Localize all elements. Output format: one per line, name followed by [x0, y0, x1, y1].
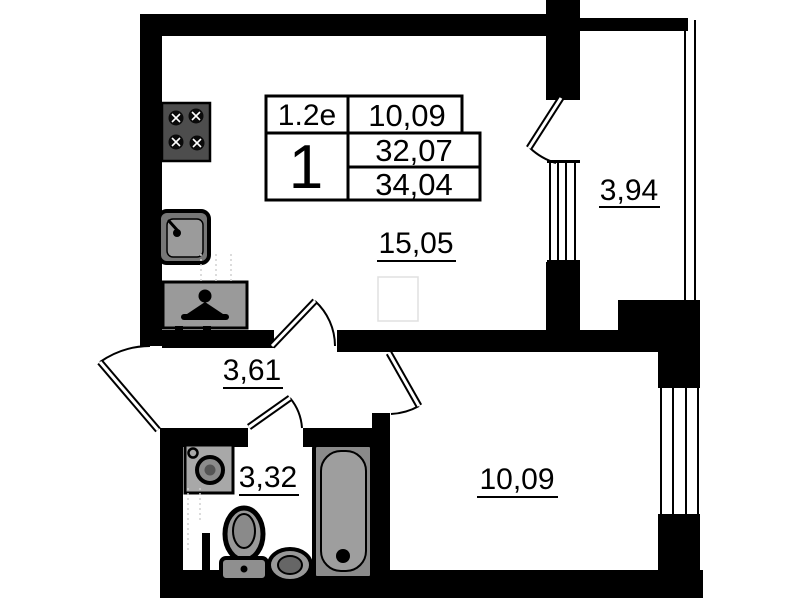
room-label-bathroom: 3,32 [239, 461, 297, 494]
stamp-area-no-balcony: 32,07 [375, 133, 453, 168]
balcony-door [529, 98, 561, 163]
wall-living-bedroom [337, 330, 660, 352]
stamp-living-area: 10,09 [368, 98, 446, 133]
pedestal-sink-icon [269, 549, 311, 581]
room-label-balcony: 3,94 [600, 174, 658, 207]
bedroom-window [658, 385, 700, 517]
living-room-door-arc [315, 301, 335, 346]
bathroom-door-arc [290, 398, 302, 428]
entrance-door [100, 346, 158, 430]
balcony-glazing [685, 20, 695, 300]
wardrobe-icon [163, 282, 247, 332]
wall-top [140, 14, 564, 36]
stamp-room-count: 1 [289, 133, 323, 202]
bedroom-door [389, 353, 419, 414]
stamp-plan-type: 1.2e [278, 99, 336, 132]
wall-bedroom-pier-top [658, 330, 700, 387]
living-room-door [272, 301, 335, 346]
wall-balcony-top [580, 18, 688, 31]
floor-plan-page: 15,05 3,94 3,61 3,32 10,09 1.2e 10,09 1 … [0, 0, 799, 600]
balcony-door-arc [530, 148, 556, 163]
bathroom-door [249, 398, 302, 428]
toilet-icon [221, 508, 267, 580]
living-balcony-window [547, 160, 580, 263]
wall-pier-balcony-top [546, 0, 580, 100]
bedroom-door-arc [391, 406, 419, 414]
wall-bath-partition [202, 533, 210, 573]
wall-bedroom-pier-bottom [658, 516, 700, 574]
stamp-total-area: 34,04 [375, 167, 453, 202]
unit-stamp-table: 1.2e 10,09 1 32,07 34,04 [266, 96, 480, 202]
entrance-door-arc [100, 346, 150, 362]
room-label-hallway: 3,61 [223, 354, 281, 387]
wall-left [140, 14, 162, 346]
wall-balcony-bottom [618, 300, 700, 332]
washing-machine-icon [185, 445, 233, 493]
bathtub-icon [314, 445, 372, 578]
room-label-living: 15,05 [378, 227, 453, 260]
wall-hall-living-divider [162, 330, 274, 348]
stove-icon [162, 103, 210, 161]
room-label-bedroom: 10,09 [479, 463, 554, 496]
wall-pier-window-bottom [546, 262, 580, 332]
wall-hall-bedroom-lower [372, 413, 390, 577]
faint-ghost-outline [378, 277, 418, 321]
floor-plan-svg: 15,05 3,94 3,61 3,32 10,09 1.2e 10,09 1 … [0, 0, 799, 600]
wall-bathroom-left [160, 437, 183, 577]
